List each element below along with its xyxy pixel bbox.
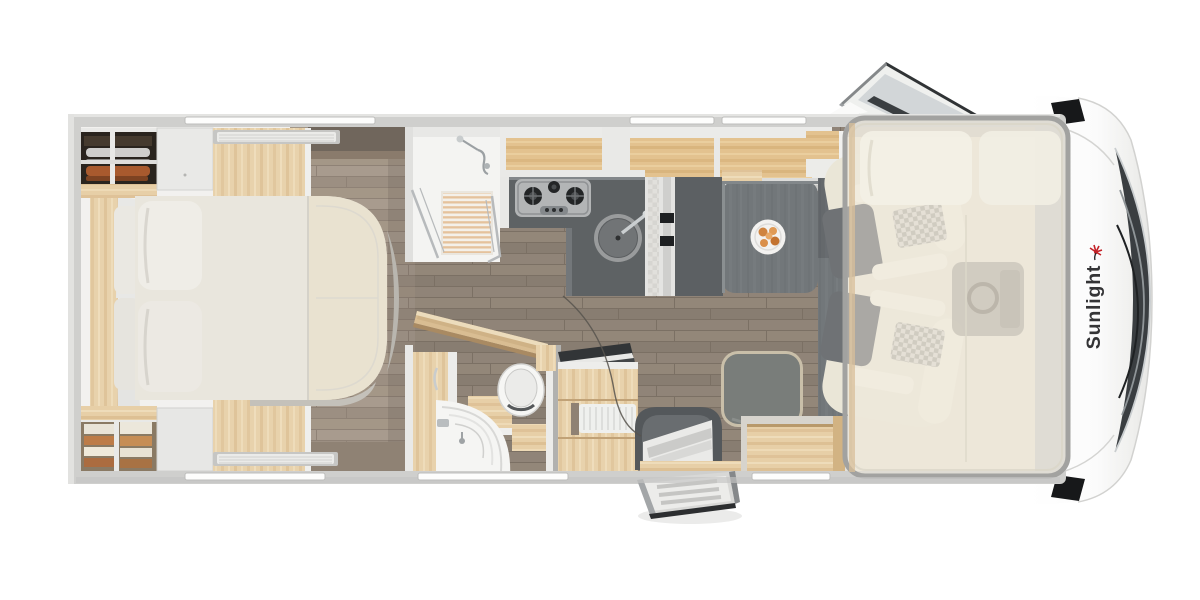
svg-text:Sunlight: Sunlight — [1083, 265, 1105, 349]
